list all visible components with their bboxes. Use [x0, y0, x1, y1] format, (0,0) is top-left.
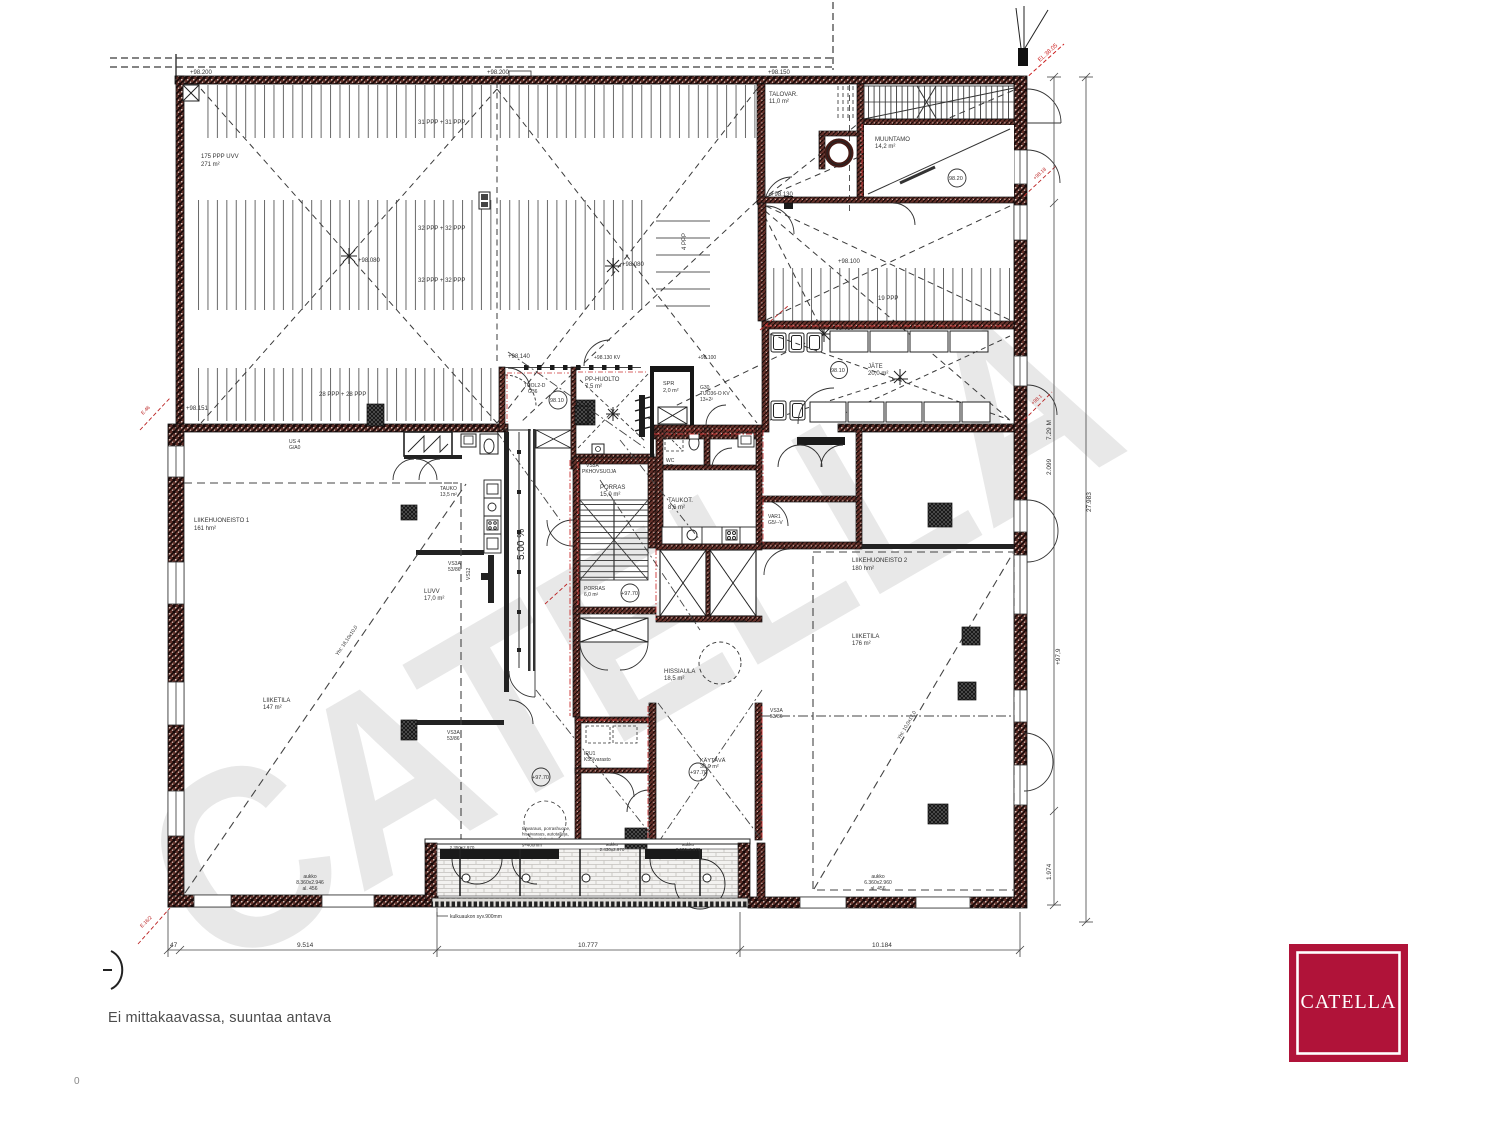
svg-text:53/86: 53/86	[770, 714, 783, 720]
svg-text:2.099: 2.099	[1046, 458, 1053, 475]
svg-text:31 PPP + 31 PPP: 31 PPP + 31 PPP	[418, 120, 465, 126]
svg-text:HISSIAULA: HISSIAULA	[664, 669, 695, 675]
svg-text:LUVV: LUVV	[424, 589, 440, 595]
svg-text:2,0 m²: 2,0 m²	[663, 388, 679, 394]
svg-text:al. 456: al. 456	[302, 886, 317, 892]
svg-text:161 hm²: 161 hm²	[194, 526, 216, 532]
svg-text:98.10: 98.10	[831, 368, 845, 374]
svg-text:+98.080: +98.080	[358, 258, 381, 264]
svg-text:13,5 m²: 13,5 m²	[440, 492, 457, 498]
svg-text:1.974: 1.974	[1046, 863, 1053, 880]
svg-text:20,0 m²: 20,0 m²	[868, 371, 888, 377]
svg-text:VS12: VS12	[466, 568, 472, 580]
svg-text:271 m²: 271 m²	[201, 162, 220, 168]
svg-text:LIIKETILA: LIIKETILA	[852, 634, 879, 640]
svg-text:Ei mittakaavassa, suuntaa anta: Ei mittakaavassa, suuntaa antava	[108, 1010, 332, 1026]
svg-text:kulkuaukon syv.900mm: kulkuaukon syv.900mm	[450, 914, 502, 920]
svg-text:14,2 m²: 14,2 m²	[875, 144, 895, 150]
svg-text:19 PPP: 19 PPP	[878, 296, 898, 302]
svg-text:10.777: 10.777	[578, 942, 598, 949]
svg-text:G/A0: G/A0	[289, 445, 301, 451]
svg-text:SPR: SPR	[663, 381, 674, 387]
svg-text:147 m²: 147 m²	[263, 705, 282, 711]
svg-text:32 PPP + 32 PPP: 32 PPP + 32 PPP	[418, 226, 465, 232]
svg-text:8,6 m²: 8,6 m²	[668, 505, 685, 511]
svg-text:TALOVAR.: TALOVAR.	[769, 92, 798, 98]
svg-text:JÄTE: JÄTE	[868, 363, 883, 370]
svg-text:G36: G36	[528, 389, 538, 395]
svg-text:+98.151: +98.151	[186, 406, 209, 412]
svg-text:98.20: 98.20	[949, 176, 963, 182]
svg-text:7.29 M: 7.29 M	[1046, 420, 1053, 440]
svg-text:LIIKEHUONEISTO 1: LIIKEHUONEISTO 1	[194, 518, 250, 524]
svg-text:PP-HUOLTO: PP-HUOLTO	[585, 377, 620, 383]
svg-text:176 m²: 176 m²	[852, 641, 871, 647]
svg-text:+98.130: +98.130	[771, 192, 794, 198]
svg-text:+98.100: +98.100	[698, 355, 716, 361]
svg-text:LIIKETILA: LIIKETILA	[263, 698, 290, 704]
svg-text:+98.150: +98.150	[768, 70, 791, 76]
svg-text:+97.70: +97.70	[621, 591, 638, 597]
svg-text:+98.200: +98.200	[487, 70, 510, 76]
svg-text:47: 47	[170, 942, 178, 949]
svg-text:9.514: 9.514	[297, 942, 314, 949]
svg-text:4 PPP: 4 PPP	[682, 233, 688, 250]
svg-text:K55/varasto: K55/varasto	[584, 757, 611, 763]
svg-text:+98.080: +98.080	[622, 262, 645, 268]
svg-text:+98.100: +98.100	[838, 259, 861, 265]
svg-text:17,0 m²: 17,0 m²	[424, 596, 444, 602]
svg-text:11,0 m²: 11,0 m²	[769, 99, 789, 105]
svg-text:0: 0	[74, 1076, 80, 1087]
svg-text:PKHOVSUOJA: PKHOVSUOJA	[582, 469, 617, 475]
svg-text:6,0 m²: 6,0 m²	[584, 592, 599, 598]
svg-text:TAUKOT.: TAUKOT.	[668, 498, 693, 504]
svg-text:tilavaraus, porrashuone,: tilavaraus, porrashuone,	[522, 826, 570, 831]
svg-text:3.630x2.970: 3.630x2.970	[676, 847, 701, 852]
svg-text:al. 456: al. 456	[870, 886, 885, 892]
svg-text:+97.70: +97.70	[532, 775, 549, 781]
svg-text:53/86: 53/86	[447, 736, 460, 742]
svg-text:28 PPP + 28 PPP: 28 PPP + 28 PPP	[319, 392, 366, 398]
svg-text:G5/--V: G5/--V	[768, 520, 783, 526]
svg-text:180 hm²: 180 hm²	[852, 566, 874, 572]
svg-text:175 PPP UVV: 175 PPP UVV	[201, 154, 239, 160]
svg-text:5.00 %: 5.00 %	[516, 529, 527, 560]
svg-text:MUUNTAMO: MUUNTAMO	[875, 137, 910, 143]
svg-text:CATELLA: CATELLA	[1301, 991, 1397, 1013]
svg-text:18,5 m²: 18,5 m²	[664, 676, 684, 682]
svg-text:27.983: 27.983	[1086, 492, 1093, 512]
svg-text:2.350x2.970: 2.350x2.970	[450, 845, 475, 850]
svg-text:10.184: 10.184	[872, 942, 892, 949]
svg-text:53/86: 53/86	[448, 567, 461, 573]
svg-text:LIIKEHUONEISTO 2: LIIKEHUONEISTO 2	[852, 558, 908, 564]
svg-text:2.430x2.970: 2.430x2.970	[600, 847, 625, 852]
svg-text:+97,9: +97,9	[1055, 648, 1062, 665]
svg-text:13+2²: 13+2²	[700, 397, 713, 403]
svg-text:+98.130 KV: +98.130 KV	[594, 355, 621, 361]
svg-text:98.10: 98.10	[550, 398, 564, 404]
svg-text:32 PPP + 32 PPP: 32 PPP + 32 PPP	[418, 278, 465, 284]
svg-text:+98.200: +98.200	[190, 70, 213, 76]
svg-text:hissivaraus, autotalleja,: hissivaraus, autotalleja,	[522, 832, 569, 837]
